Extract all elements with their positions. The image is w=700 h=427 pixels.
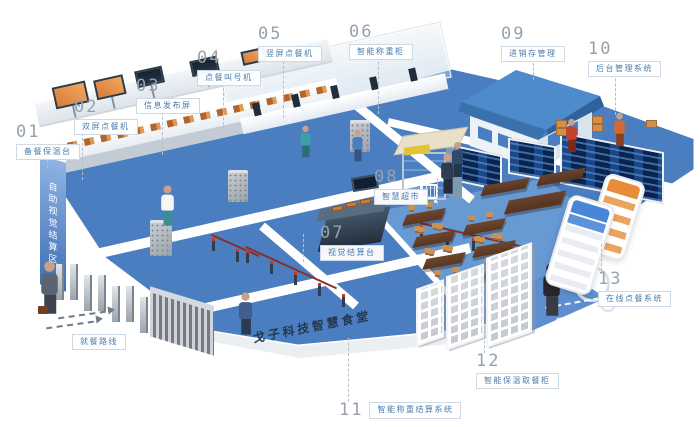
pickup-locker-panel: [416, 279, 444, 347]
pickup-locker-panel: [486, 242, 532, 348]
dining-table: [404, 212, 444, 222]
callout-10: 10 后台管理系统: [588, 41, 661, 77]
callout-06: 06 智能称重柜: [349, 24, 413, 60]
callout-03: 03 信息发布屏: [136, 78, 200, 114]
wall-zone-text: 自助视觉结算区: [47, 180, 60, 268]
stanchion-post: [246, 250, 249, 263]
person-staff: [353, 130, 363, 162]
route-label: 就餐路线: [72, 331, 126, 350]
dining-table: [464, 222, 504, 232]
stanchion-post: [342, 294, 345, 307]
stanchion-post: [318, 283, 321, 296]
person-worker: [614, 113, 624, 146]
turnstile-gate: [112, 284, 134, 324]
callout-09: 09 进销存管理: [501, 26, 565, 62]
person-worker: [566, 119, 576, 152]
callout-07: 07 视觉结算台: [320, 225, 384, 261]
smart-weighing-unit: [252, 102, 262, 116]
leader-02: [82, 128, 83, 180]
dining-table: [414, 234, 454, 244]
produce-crate: [592, 116, 603, 124]
callout-12: 12 智能保温取餐柜: [476, 353, 559, 389]
leader-13: [601, 244, 602, 271]
stanchion-post: [294, 272, 297, 285]
pickup-locker-panel: [446, 263, 484, 350]
route-arrow-icon: [107, 306, 115, 315]
smart-weighing-unit: [291, 94, 301, 108]
briefcase: [38, 306, 48, 314]
callout-13: 13 在线点餐系统: [598, 271, 671, 307]
person-chef: [161, 185, 174, 225]
leader-08: [437, 178, 438, 204]
leader-06: [378, 52, 379, 114]
smart-weighing-unit: [330, 85, 340, 99]
stanchion-post: [270, 261, 273, 274]
stanchion-post: [212, 238, 215, 251]
callout-11: 11 智能称重结算系统: [339, 402, 461, 419]
leader-05: [283, 56, 284, 118]
dining-table: [424, 256, 464, 266]
produce-crate: [646, 120, 657, 128]
person-manager: [452, 142, 463, 177]
smart-weighing-unit: [408, 68, 418, 82]
turnstile-gate: [56, 262, 78, 302]
person-staff: [301, 126, 311, 158]
leader-07: [303, 234, 304, 262]
turnstile-gate: [84, 273, 106, 313]
callout-05: 05 竖屏点餐机: [258, 26, 322, 62]
stone-bin: [228, 170, 248, 202]
callout-01: 01 备餐保温台: [16, 124, 80, 160]
person-queue-man: [239, 293, 252, 335]
leader-12: [484, 326, 485, 353]
produce-crate: [592, 124, 603, 132]
callout-02: 02 双屏点餐机: [74, 99, 138, 135]
callout-08: 08 智慧超市: [374, 169, 428, 205]
route-arrow-icon: [95, 315, 103, 324]
smart-cafeteria-diagram: 自助视觉结算区 自助称重结算区: [0, 0, 700, 427]
leader-11: [348, 338, 349, 402]
stanchion-post: [236, 249, 239, 262]
callout-04: 04 点餐叫号机: [197, 50, 261, 86]
